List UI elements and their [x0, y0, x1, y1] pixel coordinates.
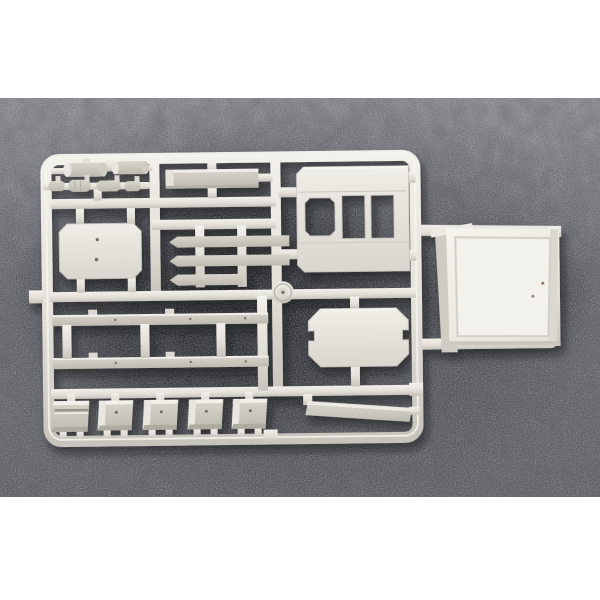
hatch-panel-part	[308, 308, 409, 367]
connector-stub	[256, 173, 272, 181]
runner-vertical-rails	[257, 296, 268, 391]
fender-part	[51, 401, 89, 432]
runner-horizontal-b	[152, 218, 276, 230]
connector-stub	[128, 277, 136, 292]
frame-gate-tab-bottom	[264, 429, 278, 441]
fender-part	[231, 399, 267, 429]
top-margin	[0, 0, 600, 98]
page: Product photograph of an unpainted light…	[0, 0, 600, 600]
connector-stub	[351, 364, 360, 386]
connector-stub	[127, 208, 135, 224]
cab-body-part	[430, 222, 560, 353]
fuel-tank-part	[112, 161, 149, 174]
photo-canvas	[0, 0, 600, 600]
connector-stub	[350, 296, 359, 309]
fender-part	[187, 399, 223, 429]
connector-stub	[208, 187, 217, 198]
bottom-margin	[0, 497, 600, 600]
door-panel-part	[59, 223, 142, 279]
fender-part	[142, 400, 178, 430]
product-photo: Product photograph of an unpainted light…	[0, 0, 600, 600]
roof-plate-part	[165, 169, 258, 189]
fender-part	[97, 400, 133, 430]
connector-stub	[279, 187, 298, 197]
connector-stub	[76, 209, 84, 225]
frame-gate-tab-left	[29, 290, 43, 303]
connector-stub	[77, 278, 85, 293]
